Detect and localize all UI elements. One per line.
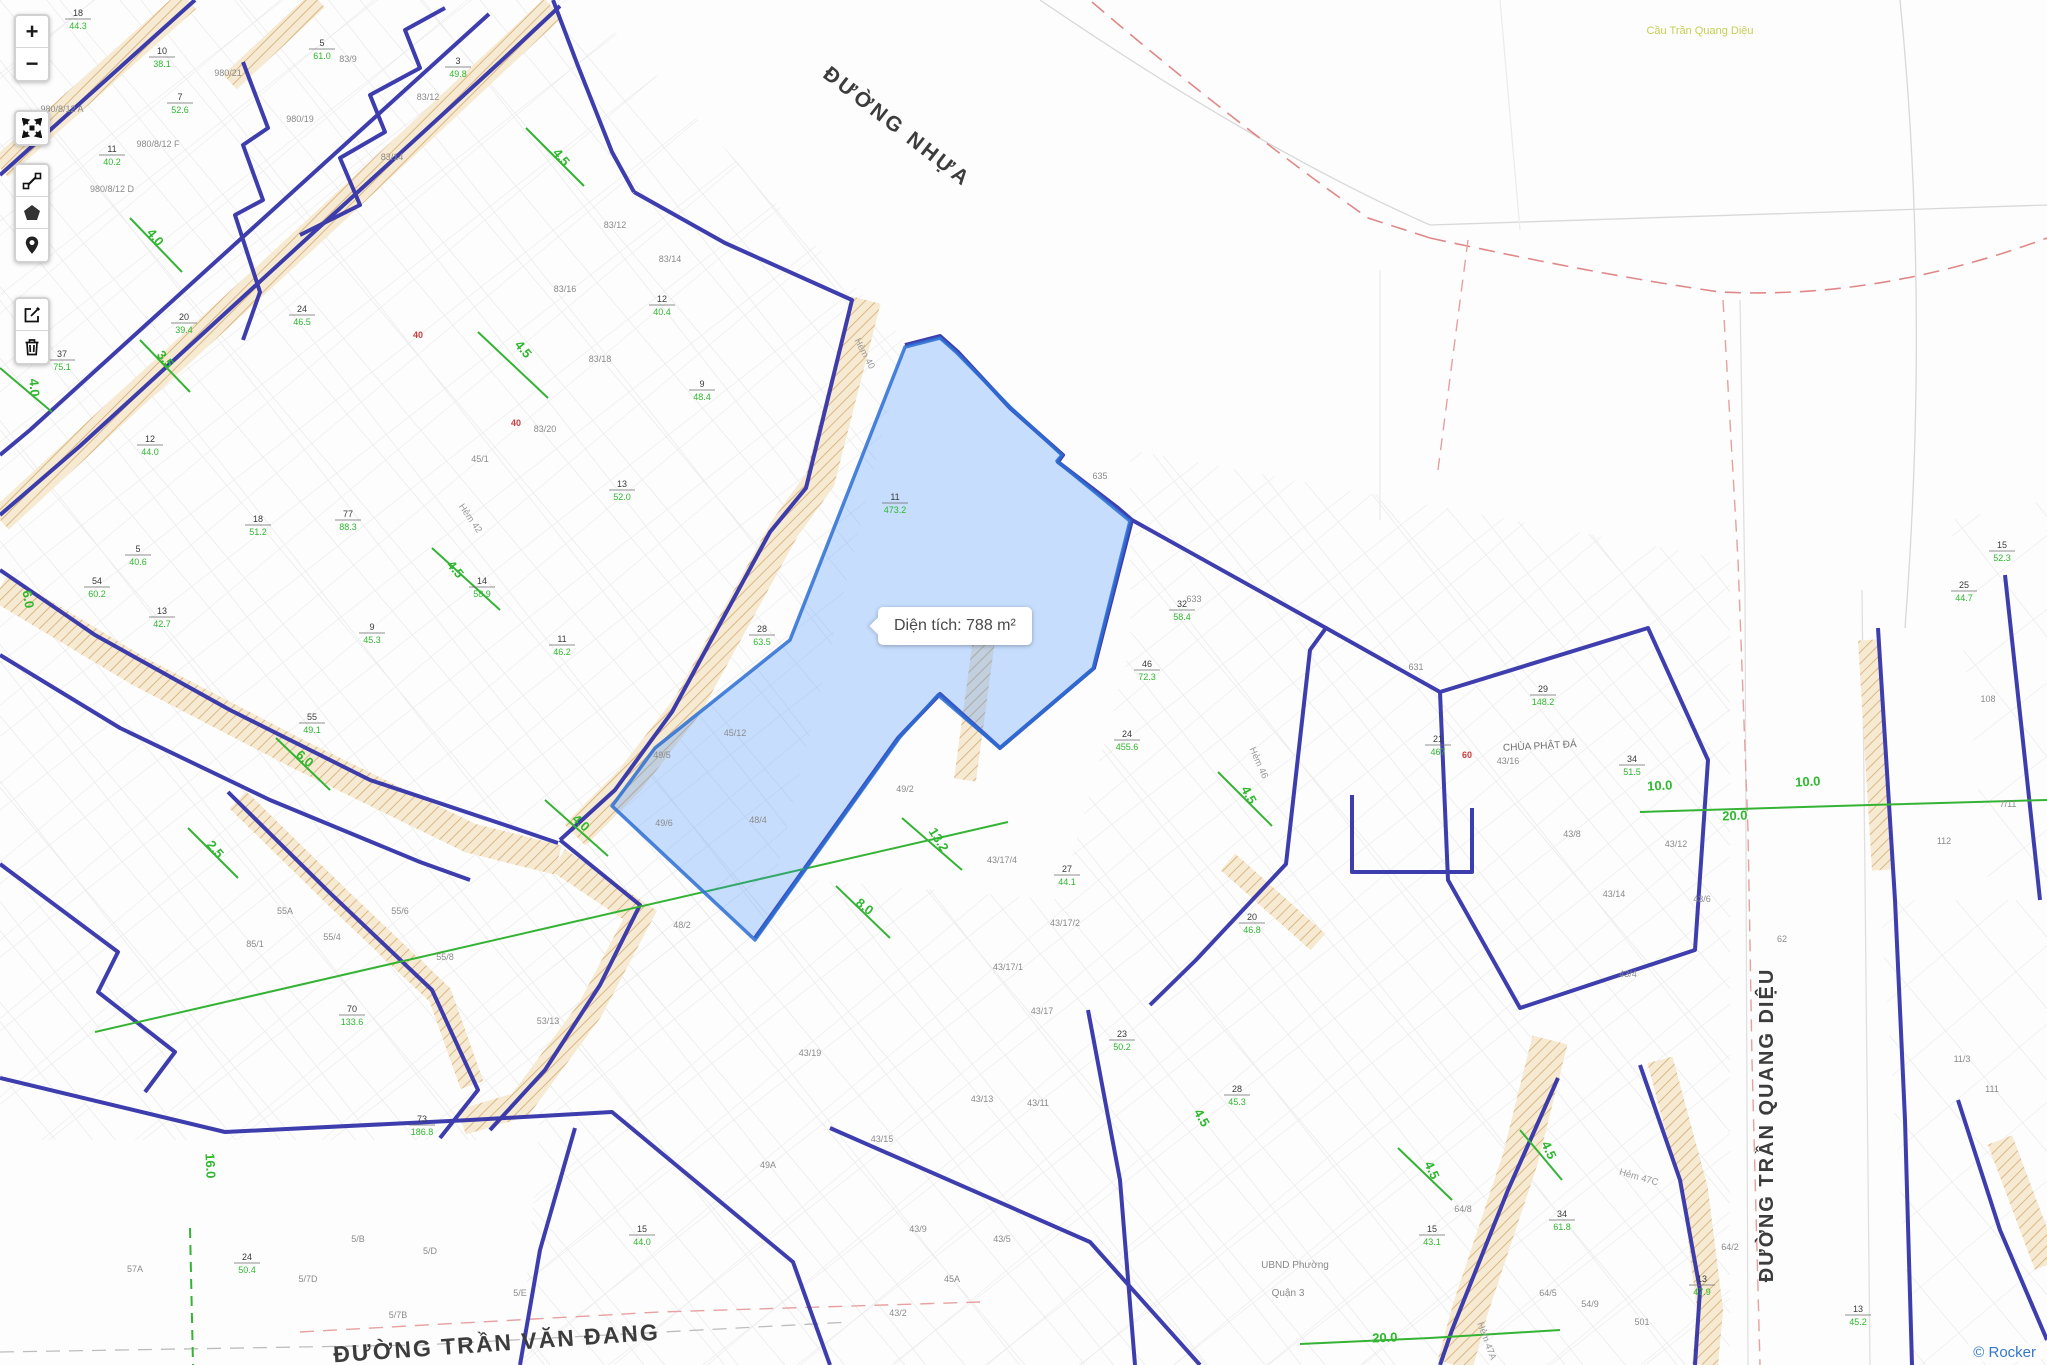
house-number-label: 43/13 (971, 1094, 994, 1104)
house-number-label: 43/9 (909, 1224, 927, 1234)
parcel-area: 148.2 (1532, 697, 1555, 707)
parcel-number: 13 (1697, 1274, 1707, 1284)
house-number-label: 49/5 (653, 750, 671, 760)
parcel-number: 34 (1627, 754, 1637, 764)
parcel-area: 75.1 (53, 362, 71, 372)
parcel-number: 70 (347, 1004, 357, 1014)
house-number-label: 980/8/12 F (136, 139, 180, 149)
parcel-area: 42.7 (153, 619, 171, 629)
measure-icon (22, 171, 42, 191)
parcel-area: 44.1 (1058, 877, 1076, 887)
house-number-label: 108 (1980, 694, 1995, 704)
parcel-area: 60.2 (88, 589, 106, 599)
parcel-number: 34 (1557, 1209, 1567, 1219)
area-tooltip: Diện tích: 788 m² (878, 607, 1032, 645)
parcel-number: 73 (417, 1114, 427, 1124)
parcel-number: 13 (617, 479, 627, 489)
parcel-area: 40.4 (653, 307, 671, 317)
house-number-label: 7/11 (2000, 799, 2017, 809)
house-number-label: 45/1 (471, 454, 489, 464)
house-number-label: 43/11 (1027, 1098, 1049, 1108)
house-number-label: 11/3 (1954, 1054, 1971, 1064)
edit-tools-control (14, 297, 50, 365)
parcel-number: 20 (179, 312, 189, 322)
draw-tools-control (14, 163, 50, 263)
parcel-area: 50.2 (1113, 1042, 1131, 1052)
cadastral-map-canvas[interactable]: ĐƯỜNG NHỰAĐƯỜNG TRẦN QUANG DIỆUĐƯỜNG TRẦ… (0, 0, 2047, 1365)
parcel-number: 54 (92, 576, 102, 586)
house-number-label: 83/12 (417, 92, 440, 102)
house-number-label: 49/6 (655, 818, 673, 828)
house-number-label: 501 (1634, 1317, 1649, 1327)
parcel-number: 20 (1247, 912, 1257, 922)
parcel-area: 61.8 (1553, 1222, 1571, 1232)
parcel-number: 23 (1117, 1029, 1127, 1039)
house-number-label: 5/7B (389, 1310, 408, 1320)
house-number-label: 48/4 (749, 815, 767, 825)
parcel-area: 46.5 (293, 317, 311, 327)
house-number-label: 83/20 (534, 424, 557, 434)
parcel-area: 39.4 (175, 325, 193, 335)
house-number-label: 980/8/12 D (90, 184, 135, 194)
edit-icon (22, 305, 42, 325)
parcel-area: 72.3 (1138, 672, 1156, 682)
parcel-number: 29 (1538, 684, 1548, 694)
parcel-number: 15 (1427, 1224, 1437, 1234)
polygon-button[interactable] (16, 197, 48, 229)
parcel-number: 77 (343, 509, 353, 519)
parcel-number: 12 (657, 294, 667, 304)
edit-button[interactable] (16, 299, 48, 331)
house-number-label: 64/8 (1454, 1204, 1472, 1214)
dimension-label: 10.0 (1647, 777, 1673, 793)
trash-icon (22, 337, 42, 357)
house-number-label: 5/E (513, 1288, 527, 1298)
parcel-number: 27 (1062, 864, 1072, 874)
house-number-label: 83/16 (554, 284, 577, 294)
house-number-label: 43/15 (871, 1134, 894, 1144)
house-number-label: 43/14 (1603, 889, 1626, 899)
parcel-label: 2450.4 (234, 1252, 260, 1275)
parcel-number: 5 (319, 38, 324, 48)
house-number-label: 83/14 (659, 254, 682, 264)
house-number-label: 55/4 (323, 932, 341, 942)
house-number-label: 49A (760, 1160, 776, 1170)
parcel-number: 14 (477, 576, 487, 586)
house-number-label: 83/12 (604, 220, 627, 230)
poi-label: UBND Phường (1261, 1260, 1329, 1271)
parcel-number: 15 (1997, 540, 2007, 550)
parcel-area: 61.0 (313, 51, 331, 61)
parcel-number: 11 (107, 144, 116, 154)
parcel-area: 63.5 (753, 637, 771, 647)
house-number-label: 48/2 (673, 920, 691, 930)
parcel-number: 37 (57, 349, 67, 359)
house-number-label: 5/B (351, 1234, 365, 1244)
marker-icon (22, 235, 42, 255)
house-number-label: 54/9 (1581, 1299, 1599, 1309)
parcel-number: 13 (157, 606, 167, 616)
fullscreen-control (14, 110, 50, 146)
parcel-number: 55 (307, 712, 317, 722)
parcel-number: 28 (1232, 1084, 1242, 1094)
parcel-area: 44.3 (69, 21, 87, 31)
house-number-label: 635 (1092, 471, 1107, 481)
parcel-area: 58.9 (473, 589, 491, 599)
attribution-link[interactable]: © Rocker (1973, 1344, 2036, 1361)
red-dashed-boundary (1438, 240, 1468, 470)
red-dashed-canal (1430, 238, 2047, 293)
house-number-label: 64/2 (1721, 1242, 1739, 1252)
dimension-label: 6.0 (19, 589, 37, 609)
parcel-number: 21 (1433, 734, 1443, 744)
zoom-out-button[interactable]: − (16, 48, 48, 80)
parcel-number: 18 (73, 8, 83, 18)
parcel-area: 38.1 (153, 59, 171, 69)
parcel-area: 51.2 (249, 527, 267, 537)
street-name-label: ĐƯỜNG TRẦN QUANG DIỆU (1754, 968, 1778, 1283)
red-code-label: 40 (413, 330, 423, 340)
house-number-label: 64/5 (1539, 1288, 1557, 1298)
parcel-number: 9 (699, 379, 704, 389)
house-number-label: 43/17/4 (987, 855, 1017, 865)
parcel-number: 11 (557, 634, 566, 644)
polygon-icon (22, 203, 42, 223)
fullscreen-icon (22, 118, 42, 138)
parcel-area: 45.3 (363, 635, 381, 645)
house-number-label: 55A (277, 906, 293, 916)
house-number-label: 5/7D (298, 1274, 318, 1284)
parcel-number: 18 (253, 514, 263, 524)
house-number-label: 45A (944, 1274, 960, 1284)
parcel-area: 46.8 (1243, 925, 1261, 935)
parcel-number: 24 (242, 1252, 252, 1262)
parcel-label: 1345.2 (1845, 1304, 1871, 1327)
parcel-area: 52.6 (171, 105, 189, 115)
red-code-label: 40 (511, 418, 521, 428)
house-number-label: 631 (1408, 662, 1423, 672)
house-number-label: 83/14 (381, 152, 404, 162)
measure-button[interactable] (16, 165, 48, 197)
street-name-label: ĐƯỜNG NHỰA (819, 61, 976, 191)
parcel-number: 24 (1122, 729, 1132, 739)
parcel-number: 10 (157, 46, 167, 56)
house-number-label: 85/1 (246, 939, 264, 949)
house-number-label: 43/17/2 (1050, 918, 1080, 928)
map-attribution: © Rocker (1968, 1343, 2041, 1362)
house-number-label: 980/19 (286, 114, 314, 124)
house-number-label: 43/6 (1693, 894, 1711, 904)
dimension-label: 10.0 (1795, 773, 1821, 789)
parcel-area: 45.3 (1228, 1097, 1246, 1107)
dimension-label: 4.0 (26, 378, 43, 397)
parcel-number: 13 (1853, 1304, 1863, 1314)
house-number-label: 53/13 (537, 1016, 560, 1026)
parcel-area: 473.2 (884, 505, 907, 515)
house-number-label: 112 (1937, 836, 1951, 846)
house-number-label: 62 (1777, 934, 1787, 944)
parcel-area: 51.5 (1623, 767, 1641, 777)
house-number-label: 57A (127, 1264, 143, 1274)
parcel-area: 45.2 (1849, 1317, 1867, 1327)
parcel-number: 9 (369, 622, 374, 632)
house-number-label: 111 (1985, 1084, 1999, 1094)
parcel-area: 50.4 (238, 1265, 256, 1275)
poi-label: Cầu Trần Quang Diệu (1646, 25, 1753, 37)
house-number-label: 55/6 (391, 906, 409, 916)
parcel-area: 49.1 (303, 725, 321, 735)
parcel-area: 46.2 (553, 647, 571, 657)
parcel-number: 24 (297, 304, 307, 314)
parcel-area: 49.8 (449, 69, 467, 79)
zoom-control: + − (14, 14, 50, 82)
house-number-label: 633 (1186, 594, 1201, 604)
house-number-label: 980/21 (214, 68, 242, 78)
house-number-label: 43/16 (1497, 756, 1520, 766)
parcel-number: 7 (177, 92, 182, 102)
parcel-area: 52.0 (613, 492, 631, 502)
parcel-area: 48.4 (693, 392, 711, 402)
parcel-number: 11 (890, 492, 899, 502)
parcel-area: 47.9 (1693, 1287, 1711, 1297)
parcel-number: 5 (135, 544, 140, 554)
parcel-area: 88.3 (339, 522, 357, 532)
house-number-label: 43/4 (1619, 969, 1637, 979)
house-number-label: 43/17 (1031, 1006, 1054, 1016)
dimension-label: 20.0 (1722, 808, 1748, 824)
parcel-area: 44.0 (141, 447, 159, 457)
house-number-label: 43/17/1 (993, 962, 1023, 972)
parcel-area: 40.2 (103, 157, 121, 167)
parcel-area: 186.8 (411, 1127, 434, 1137)
parcel-number: 25 (1959, 580, 1969, 590)
house-number-label: 5/D (423, 1246, 438, 1256)
parcel-area: 43.1 (1423, 1237, 1441, 1247)
parcel-area: 58.4 (1173, 612, 1191, 622)
house-number-label: 49/2 (896, 784, 914, 794)
delete-button[interactable] (16, 331, 48, 363)
map-application: ĐƯỜNG NHỰAĐƯỜNG TRẦN QUANG DIỆUĐƯỜNG TRẦ… (0, 0, 2047, 1365)
parcel-area: 44.0 (633, 1237, 651, 1247)
house-number-label: 43/19 (799, 1048, 822, 1058)
parcel-number: 3 (455, 56, 460, 66)
fullscreen-button[interactable] (16, 112, 48, 144)
dimension-label: 20.0 (1372, 1330, 1398, 1346)
area-tooltip-text: Diện tích: 788 m² (894, 617, 1016, 634)
red-dashed-canal (1092, 2, 1430, 238)
dimension-label: 16.0 (202, 1153, 218, 1179)
house-number-label: 83/9 (339, 54, 357, 64)
parcel-area: 40.6 (129, 557, 147, 567)
parcel-number: 46 (1142, 659, 1152, 669)
zoom-in-button[interactable]: + (16, 16, 48, 48)
red-code-label: 60 (1462, 750, 1472, 760)
house-number-label: 43/8 (1563, 829, 1581, 839)
parcel-number: 12 (145, 434, 155, 444)
house-number-label: 43/12 (1665, 839, 1688, 849)
parcel-number: 15 (637, 1224, 647, 1234)
house-number-label: 45/12 (724, 728, 747, 738)
parcel-area: 52.3 (1993, 553, 2011, 563)
house-number-label: 43/5 (993, 1234, 1011, 1244)
poi-label: Quận 3 (1272, 1288, 1305, 1299)
parcel-area: 467 (1430, 747, 1445, 757)
house-number-label: 43/2 (889, 1308, 907, 1318)
house-number-label: 83/18 (589, 354, 612, 364)
parcel-area: 133.6 (341, 1017, 364, 1027)
parcel-number: 28 (757, 624, 767, 634)
house-number-label: 55/8 (436, 952, 454, 962)
marker-button[interactable] (16, 229, 48, 261)
parcel-area: 44.7 (1955, 593, 1973, 603)
parcel-area: 455.6 (1116, 742, 1139, 752)
